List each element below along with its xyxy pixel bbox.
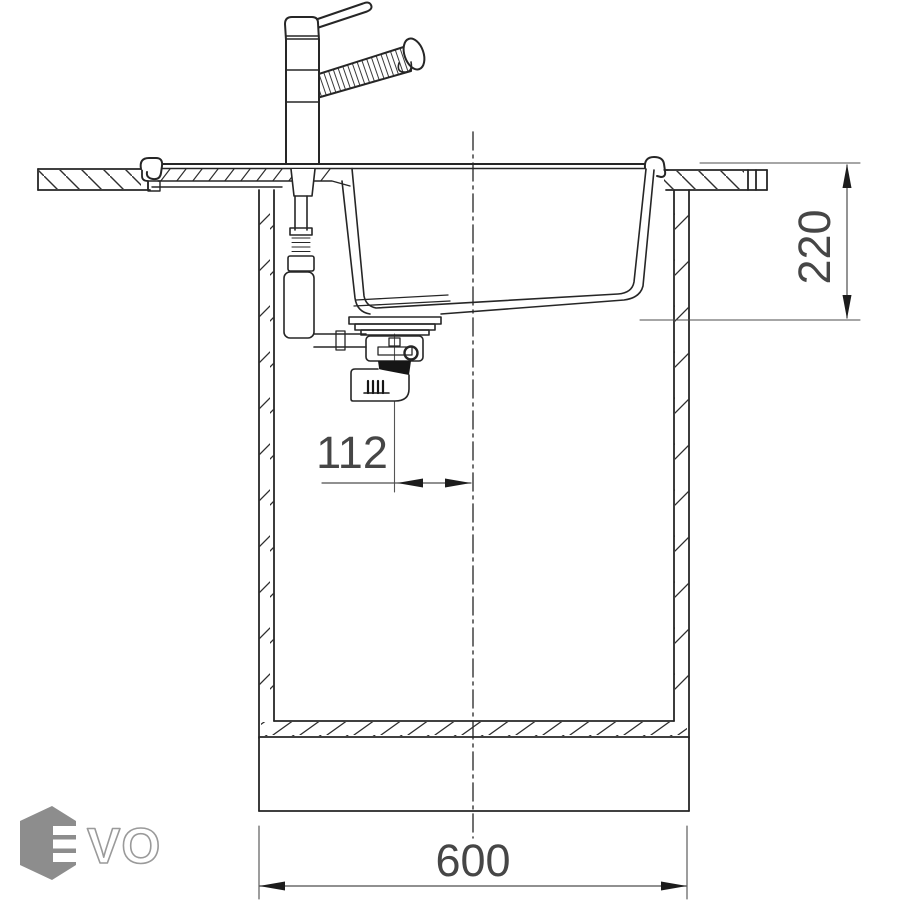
arrow-up-icon xyxy=(843,164,852,188)
sink-left-lip xyxy=(141,158,162,191)
dim-label-112: 112 xyxy=(316,427,388,478)
cabinet-right-wall xyxy=(674,190,689,738)
arrow-right-icon xyxy=(661,882,687,891)
outlet-elbow xyxy=(351,369,409,401)
countertop-left xyxy=(38,169,150,190)
dimension-600: 600 xyxy=(259,826,687,899)
dim-label-600: 600 xyxy=(435,835,510,886)
cabinet-left-wall xyxy=(259,190,274,738)
arrow-down-icon xyxy=(843,295,852,319)
overflow-pipe xyxy=(284,169,366,350)
arrow-left-icon xyxy=(259,882,285,891)
logo-vo-text: VO xyxy=(87,818,161,874)
cabinet-carcass xyxy=(259,190,689,811)
sink-right-lip xyxy=(645,157,668,177)
dim-label-220: 220 xyxy=(789,209,840,284)
technical-drawing: 220 112 600 VO xyxy=(0,0,900,900)
drain-flange xyxy=(349,317,441,324)
cabinet-bottom-shelf xyxy=(259,721,689,737)
dimension-112: 112 xyxy=(316,427,471,488)
trap-nut xyxy=(405,347,418,360)
sink-body xyxy=(141,157,668,314)
logo-e-bars-icon xyxy=(53,826,86,862)
evo-logo: VO xyxy=(20,806,161,880)
faucet xyxy=(285,3,428,163)
drawing-canvas: 220 112 600 VO xyxy=(0,0,900,900)
arrow-left-icon xyxy=(397,479,423,488)
cabinet-plinth xyxy=(259,738,689,811)
arrow-right-icon xyxy=(445,479,471,488)
countertop-right xyxy=(663,170,767,190)
faucet-base-body xyxy=(285,17,319,163)
